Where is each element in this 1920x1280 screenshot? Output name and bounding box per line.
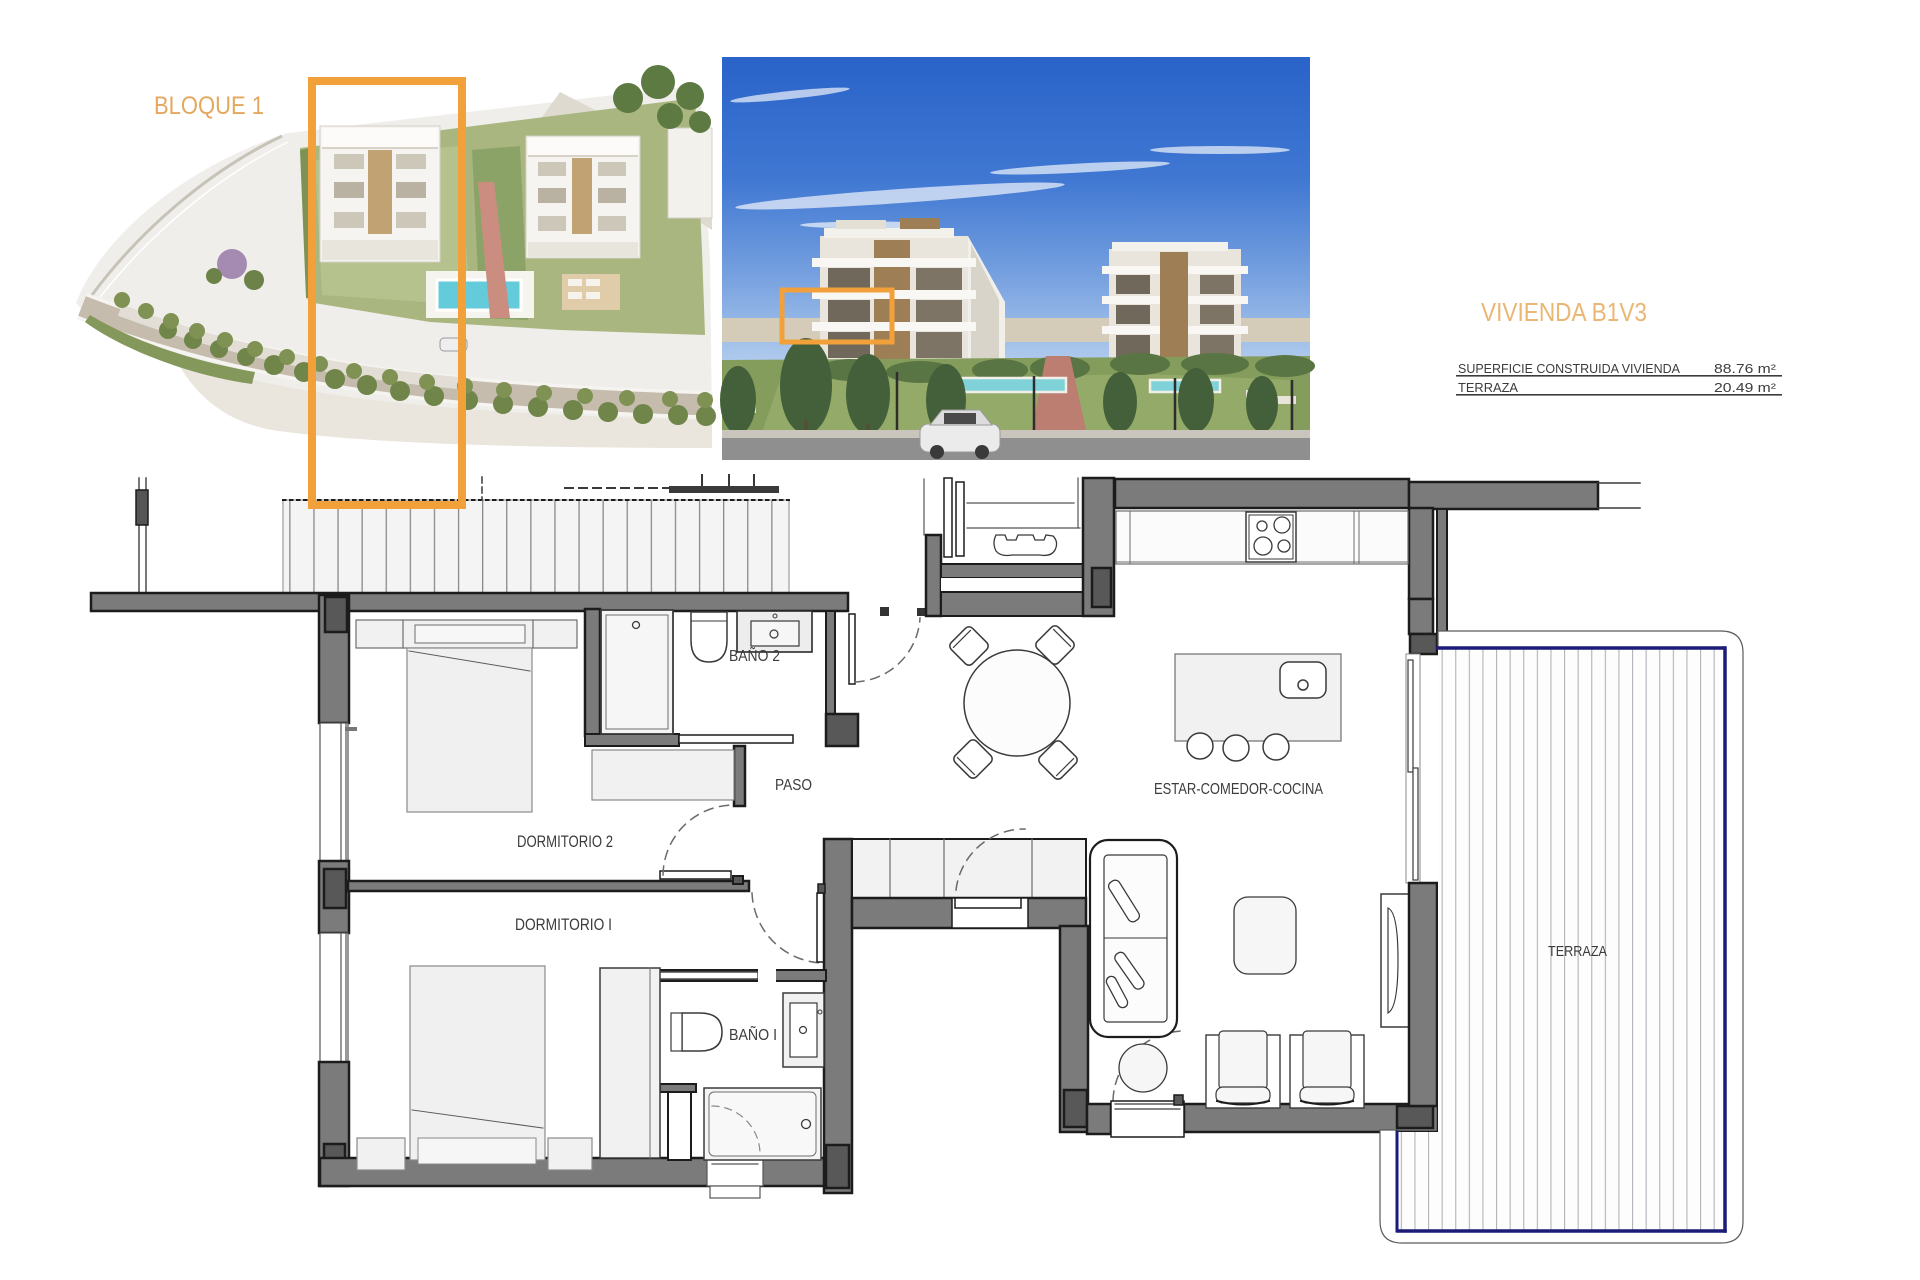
svg-text:VIVIENDA B1V3: VIVIENDA B1V3 [1481,297,1647,327]
svg-text:88.76 m²: 88.76 m² [1714,361,1777,376]
svg-text:TERRAZA: TERRAZA [1548,943,1607,960]
svg-text:BAÑO 2: BAÑO 2 [729,645,780,665]
svg-text:DORMITORIO 2: DORMITORIO 2 [517,832,613,851]
svg-text:20.49 m²: 20.49 m² [1714,380,1777,395]
svg-text:BAÑO I: BAÑO I [729,1024,777,1044]
svg-text:ESTAR-COMEDOR-COCINA: ESTAR-COMEDOR-COCINA [1154,781,1323,798]
svg-text:BLOQUE 1: BLOQUE 1 [154,92,264,120]
svg-text:TERRAZA: TERRAZA [1458,380,1518,395]
svg-text:DORMITORIO I: DORMITORIO I [515,915,612,934]
svg-text:PASO: PASO [775,777,812,794]
svg-text:SUPERFICIE CONSTRUIDA VIVIENDA: SUPERFICIE CONSTRUIDA VIVIENDA [1458,361,1680,376]
